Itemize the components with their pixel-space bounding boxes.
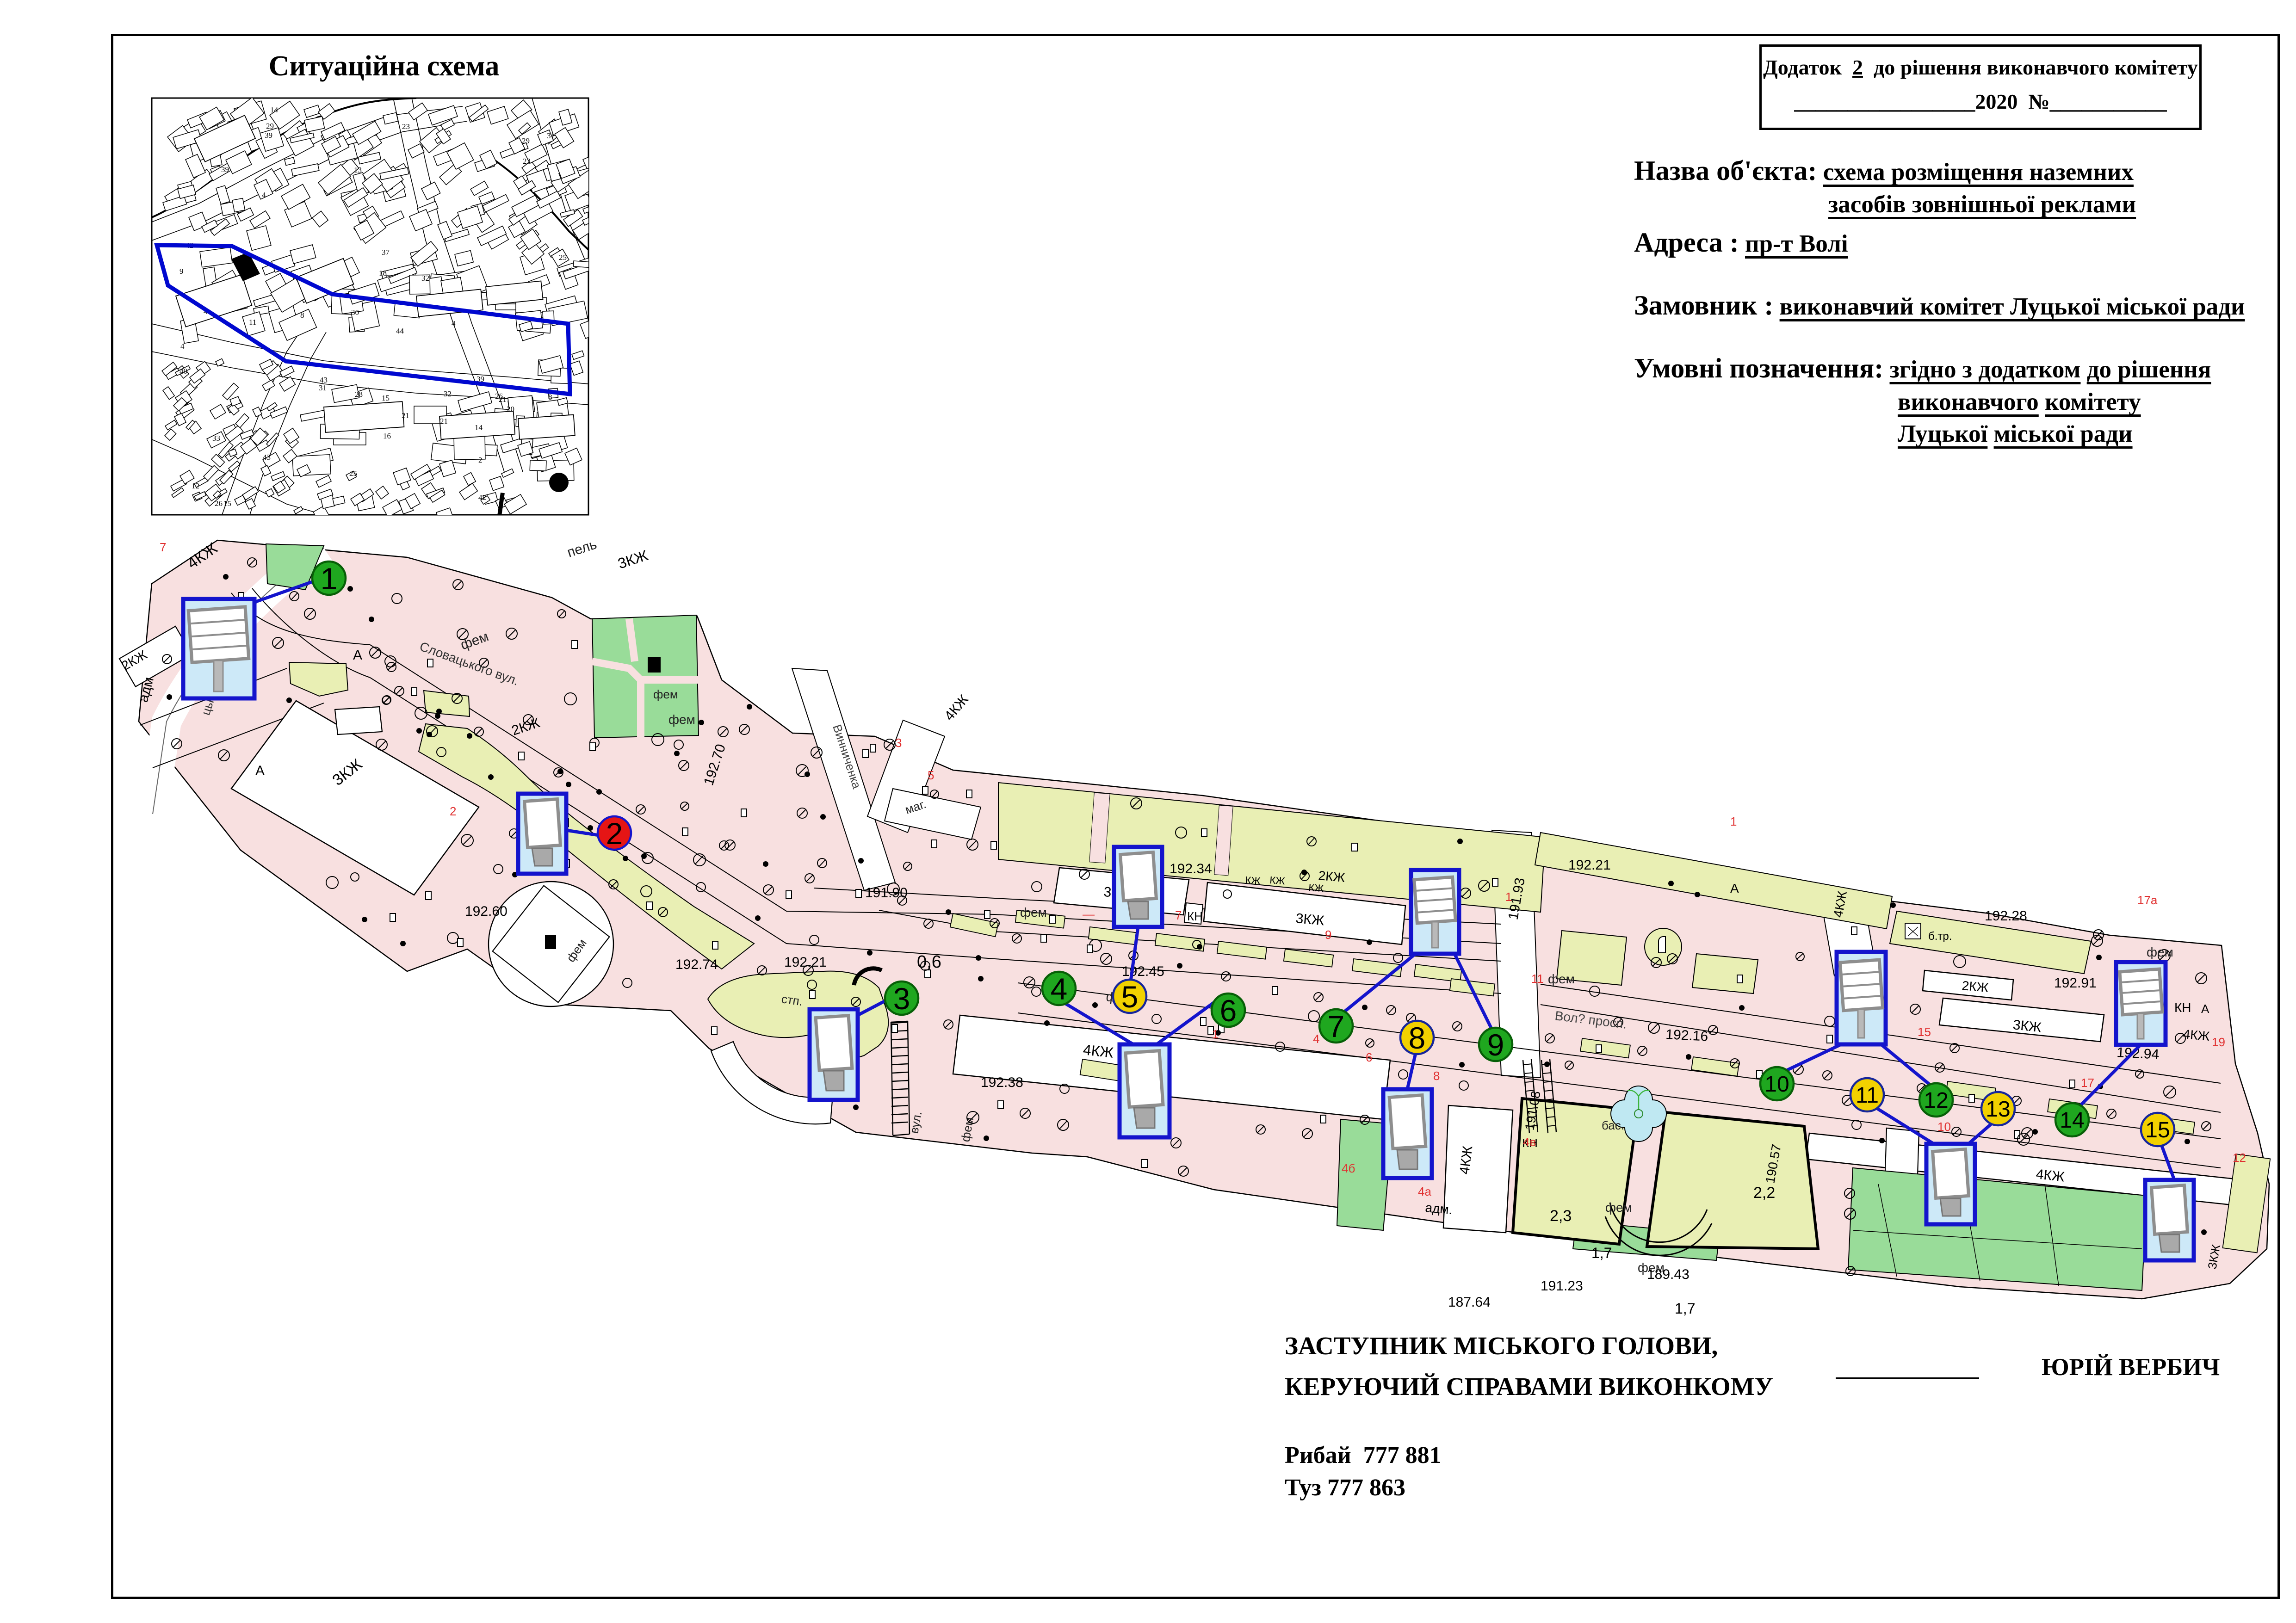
svg-text:4: 4	[262, 191, 266, 199]
svg-text:31: 31	[547, 131, 555, 140]
svg-text:20: 20	[507, 405, 514, 413]
svg-text:0,6: 0,6	[917, 952, 941, 972]
svg-text:1,7: 1,7	[1675, 1300, 1695, 1317]
svg-text:29: 29	[266, 122, 274, 130]
svg-text:192.21: 192.21	[1568, 858, 1611, 873]
svg-text:КН: КН	[1187, 909, 1203, 923]
svg-text:40: 40	[179, 367, 187, 376]
svg-text:23: 23	[402, 122, 410, 131]
svg-text:б.тр.: б.тр.	[1928, 930, 1952, 943]
svg-text:7: 7	[160, 540, 166, 554]
svg-text:10: 10	[1764, 1072, 1789, 1097]
svg-text:30: 30	[351, 308, 359, 317]
svg-text:стп.: стп.	[780, 992, 804, 1008]
svg-text:39: 39	[221, 165, 229, 174]
svg-text:6: 6	[1220, 994, 1237, 1028]
svg-text:13: 13	[1986, 1097, 2010, 1122]
svg-text:фем: фем	[1548, 972, 1575, 986]
svg-text:4КЖ: 4КЖ	[2035, 1166, 2065, 1185]
svg-text:32: 32	[444, 389, 452, 398]
svg-text:2,2: 2,2	[1753, 1184, 1775, 1202]
svg-text:фем: фем	[1020, 905, 1047, 919]
svg-text:4: 4	[1051, 972, 1068, 1006]
svg-text:15: 15	[2145, 1118, 2170, 1142]
svg-text:3КЖ: 3КЖ	[2012, 1017, 2042, 1035]
svg-text:37: 37	[382, 248, 390, 257]
svg-text:фем: фем	[653, 687, 678, 701]
svg-text:2: 2	[450, 804, 456, 818]
svg-text:192.74: 192.74	[675, 957, 718, 972]
svg-text:3: 3	[893, 981, 910, 1016]
svg-text:29: 29	[522, 136, 530, 145]
svg-text:4в: 4в	[1523, 1135, 1536, 1149]
svg-text:9: 9	[179, 267, 184, 276]
svg-text:фем: фем	[668, 712, 695, 727]
svg-text:2КЖ: 2КЖ	[1961, 978, 1989, 995]
svg-text:15: 15	[382, 394, 390, 402]
svg-text:14: 14	[475, 423, 483, 432]
svg-text:А: А	[255, 763, 265, 778]
svg-text:43: 43	[320, 376, 328, 384]
svg-text:192.34: 192.34	[1170, 861, 1212, 876]
svg-text:11: 11	[249, 318, 256, 327]
svg-text:192.28: 192.28	[1985, 908, 2027, 924]
svg-text:42: 42	[478, 493, 486, 502]
svg-text:фем: фем	[2147, 945, 2173, 959]
svg-text:1: 1	[1212, 1027, 1219, 1041]
svg-text:А: А	[1730, 881, 1739, 895]
svg-text:9: 9	[1325, 928, 1331, 942]
svg-text:26: 26	[215, 499, 223, 508]
svg-text:13: 13	[354, 166, 362, 174]
svg-text:КН: КН	[2174, 1000, 2191, 1015]
svg-text:4КЖ: 4КЖ	[1082, 1041, 1114, 1061]
svg-text:фем: фем	[1605, 1200, 1632, 1215]
svg-text:11: 11	[1531, 972, 1544, 986]
svg-text:КЖ: КЖ	[1308, 882, 1324, 894]
svg-text:8: 8	[300, 311, 304, 320]
svg-text:5: 5	[928, 768, 934, 782]
svg-text:43: 43	[263, 453, 271, 462]
svg-text:А: А	[353, 648, 362, 663]
svg-text:2: 2	[478, 456, 483, 464]
svg-text:12: 12	[1924, 1088, 1948, 1113]
svg-text:15: 15	[1918, 1025, 1931, 1039]
svg-text:2,3: 2,3	[1550, 1207, 1572, 1225]
svg-text:7: 7	[1328, 1009, 1345, 1043]
svg-text:4: 4	[180, 342, 185, 351]
svg-text:16: 16	[383, 432, 391, 440]
svg-text:10: 10	[1937, 1120, 1951, 1134]
svg-text:1: 1	[321, 562, 338, 596]
svg-text:КЖ: КЖ	[1269, 874, 1286, 887]
svg-text:15: 15	[223, 499, 231, 508]
svg-text:9: 9	[1487, 1028, 1504, 1062]
svg-text:4КЖ: 4КЖ	[941, 692, 972, 724]
svg-text:21: 21	[402, 411, 409, 420]
svg-text:А: А	[2201, 1002, 2209, 1016]
svg-text:8: 8	[1409, 1021, 1426, 1055]
svg-text:191.90: 191.90	[865, 885, 908, 901]
svg-text:17: 17	[2081, 1076, 2094, 1090]
svg-text:4: 4	[452, 319, 456, 328]
svg-text:192.38: 192.38	[981, 1075, 1023, 1090]
svg-text:32: 32	[421, 274, 429, 283]
svg-text:17а: 17а	[2137, 893, 2158, 907]
svg-text:44: 44	[396, 327, 404, 335]
svg-text:192.91: 192.91	[2054, 975, 2097, 991]
svg-text:33: 33	[212, 434, 220, 443]
svg-text:3: 3	[895, 736, 902, 750]
svg-text:28: 28	[355, 390, 363, 399]
svg-text:192.60: 192.60	[465, 904, 507, 919]
svg-text:4КЖ: 4КЖ	[2182, 1027, 2210, 1043]
svg-text:1: 1	[1730, 815, 1737, 828]
svg-text:пель: пель	[565, 537, 599, 560]
svg-text:31: 31	[319, 383, 327, 392]
svg-text:4: 4	[1313, 1032, 1319, 1046]
svg-text:4б: 4б	[1342, 1161, 1355, 1175]
svg-text:192.21: 192.21	[784, 955, 827, 970]
svg-text:КЖ: КЖ	[1245, 874, 1261, 887]
svg-text:39: 39	[265, 131, 272, 140]
svg-text:192.16: 192.16	[1665, 1027, 1708, 1044]
svg-text:187.64: 187.64	[1448, 1295, 1491, 1310]
svg-text:21: 21	[499, 395, 507, 404]
svg-text:19: 19	[2212, 1035, 2225, 1049]
svg-text:3КЖ: 3КЖ	[1295, 911, 1325, 928]
svg-text:189.43: 189.43	[1647, 1267, 1690, 1282]
svg-text:12: 12	[2233, 1151, 2246, 1165]
svg-text:23: 23	[523, 157, 531, 166]
svg-text:14: 14	[270, 105, 278, 114]
svg-text:25: 25	[559, 253, 567, 262]
svg-text:1,7: 1,7	[1591, 1245, 1612, 1261]
svg-text:21: 21	[440, 417, 448, 426]
svg-text:18: 18	[379, 269, 387, 278]
svg-text:2: 2	[606, 816, 623, 851]
svg-text:7: 7	[1175, 908, 1182, 922]
svg-text:адм.: адм.	[1424, 1200, 1453, 1217]
svg-text:4а: 4а	[1418, 1185, 1431, 1198]
svg-text:6: 6	[1366, 1050, 1372, 1064]
svg-text:1: 1	[1505, 890, 1512, 904]
svg-text:12: 12	[192, 481, 199, 490]
svg-text:192.45: 192.45	[1122, 964, 1164, 979]
svg-text:2КЖ: 2КЖ	[1318, 868, 1345, 885]
svg-text:8: 8	[1433, 1069, 1440, 1083]
svg-text:5: 5	[1121, 980, 1139, 1014]
svg-text:бас.: бас.	[1602, 1118, 1624, 1132]
svg-text:—: —	[1083, 907, 1095, 921]
svg-text:3КЖ: 3КЖ	[616, 547, 650, 572]
svg-text:25: 25	[349, 469, 357, 478]
svg-text:11: 11	[1856, 1083, 1879, 1108]
svg-text:14: 14	[2060, 1108, 2084, 1133]
svg-text:191.23: 191.23	[1541, 1278, 1583, 1294]
